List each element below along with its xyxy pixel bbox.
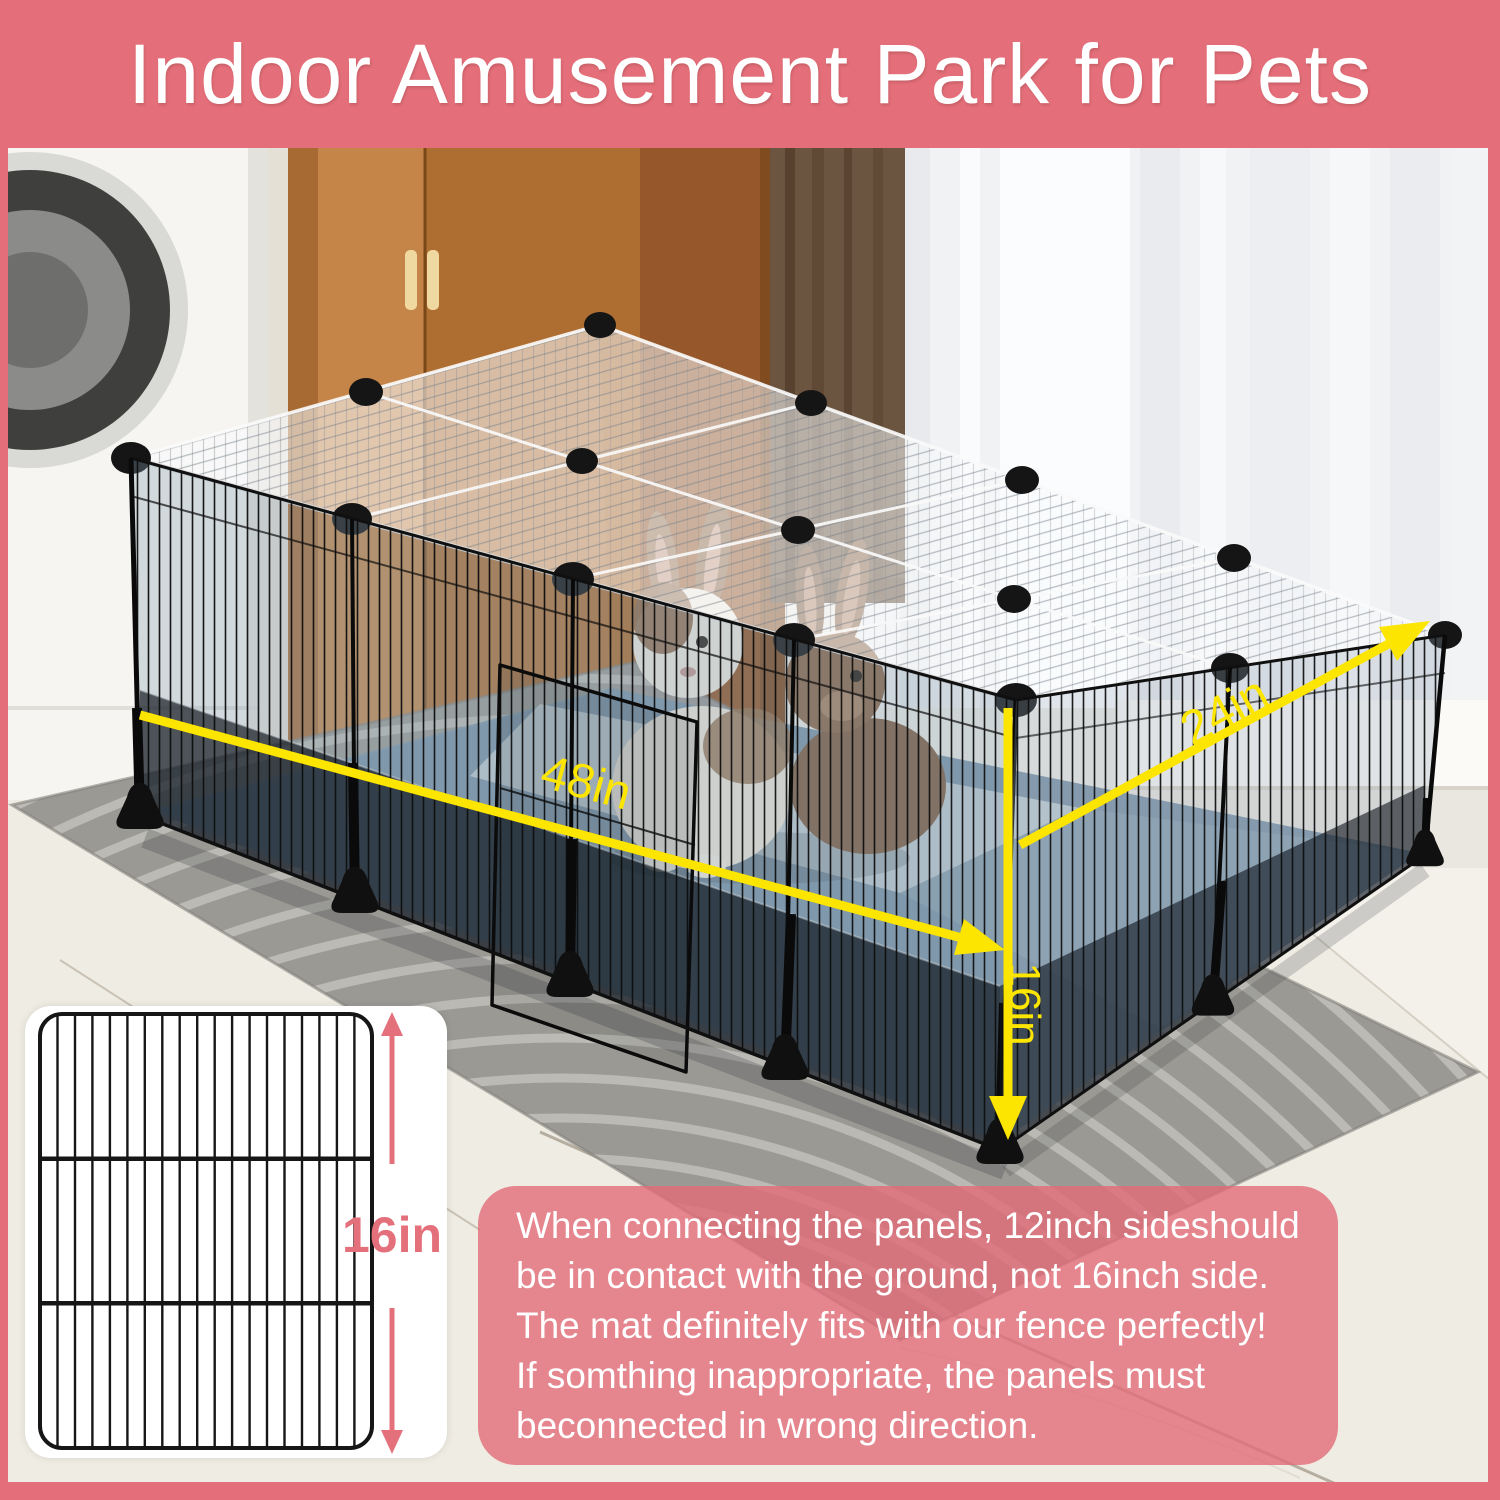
panel-card-svg: 16in: [25, 1006, 447, 1458]
note-line: If somthing inappropriate, the panels mu…: [516, 1351, 1318, 1401]
dim-16-label: 16in: [1000, 962, 1049, 1045]
banner: Indoor Amusement Park for Pets: [0, 0, 1500, 148]
wire-panel-drawing: [40, 1014, 372, 1448]
banner-title: Indoor Amusement Park for Pets: [128, 26, 1372, 123]
wardrobe-handle: [405, 250, 417, 310]
note-line: beconnected in wrong direction.: [516, 1401, 1318, 1451]
note-line: be in contact with the ground, not 16inc…: [516, 1251, 1318, 1301]
note-line: The mat definitely fits with our fence p…: [516, 1301, 1318, 1351]
note-box: When connecting the panels, 12inch sides…: [478, 1186, 1338, 1465]
product-infographic: Indoor Amusement Park for Pets: [0, 0, 1500, 1500]
pen-door: [492, 665, 697, 1072]
panel-dimension-card: 16in: [25, 1006, 447, 1458]
wardrobe-handle: [427, 250, 439, 310]
card-height-label: 16in: [342, 1207, 442, 1263]
note-line: When connecting the panels, 12inch sides…: [516, 1201, 1318, 1251]
